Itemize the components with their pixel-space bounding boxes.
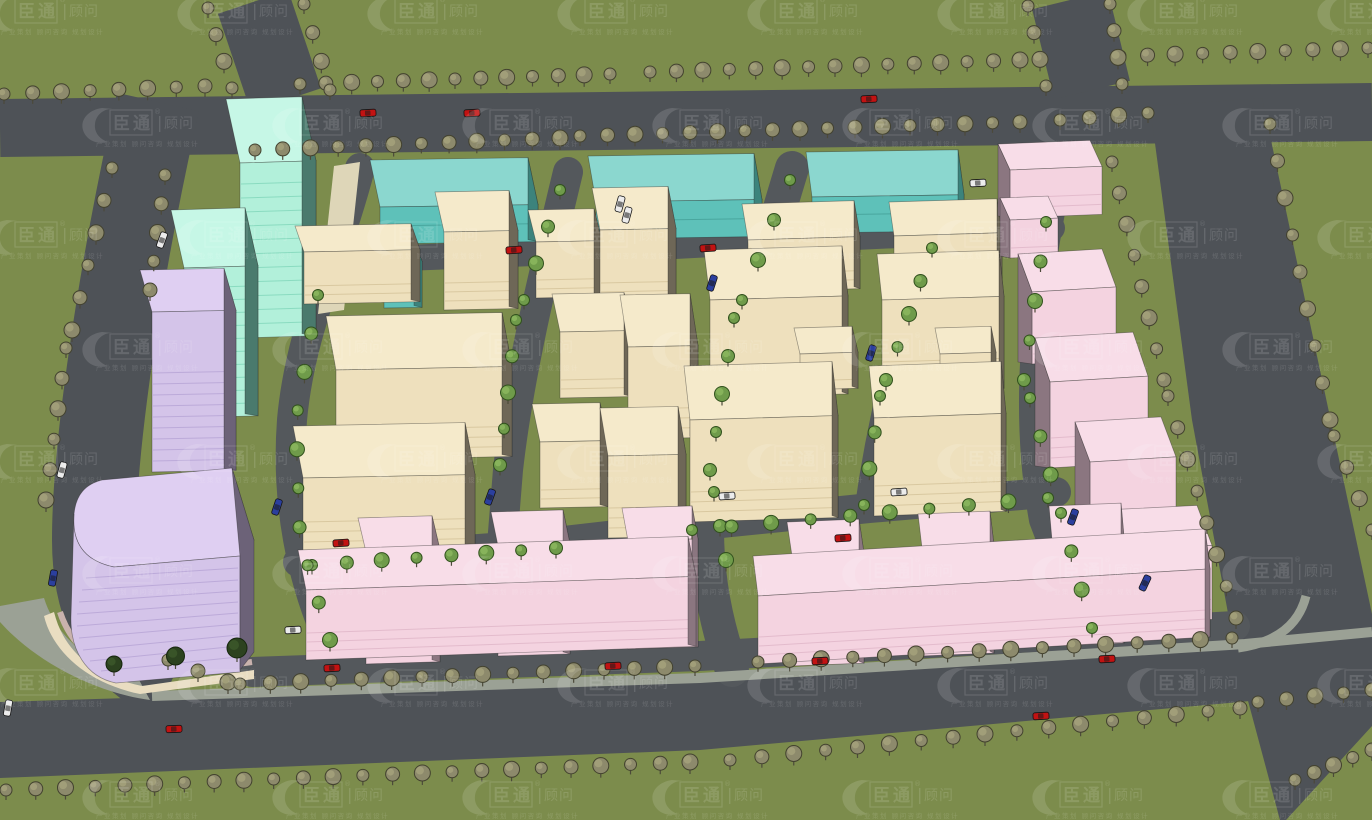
- tree-highlight: [171, 82, 177, 88]
- tree-highlight: [1172, 422, 1179, 429]
- watermark-brand-text: 臣通: [398, 450, 438, 470]
- watermark-brand-text: 臣通: [1063, 114, 1103, 134]
- tree-highlight: [752, 254, 760, 262]
- building-pink-row-west-base: [298, 536, 696, 660]
- tree-highlight: [74, 292, 81, 299]
- tree-highlight: [716, 388, 724, 396]
- tree-highlight: [909, 58, 916, 65]
- tree-highlight: [1142, 50, 1149, 57]
- tree-highlight: [293, 406, 299, 412]
- tree-highlight: [538, 666, 545, 673]
- watermark-brand-text: 臣通: [873, 786, 913, 806]
- tree-highlight: [475, 73, 482, 80]
- tree-highlight: [144, 284, 151, 291]
- watermark-suffix-text: 顾问: [1304, 788, 1334, 804]
- tree-highlight: [141, 82, 149, 90]
- watermark-divider: |: [1297, 785, 1302, 804]
- tree-highlight: [786, 176, 792, 182]
- watermark-tagline: 产业策划 顾问咨询 规划设计: [96, 139, 199, 148]
- tree-highlight: [505, 763, 513, 771]
- tree-highlight: [794, 123, 802, 131]
- watermark-divider: |: [632, 1, 637, 20]
- tree-highlight: [49, 434, 55, 440]
- roof-face: [600, 406, 686, 456]
- tree-highlight: [671, 66, 678, 73]
- tree-highlight: [804, 62, 810, 68]
- watermark-brand-text: 臣通: [778, 2, 818, 22]
- tree-highlight: [250, 145, 256, 151]
- watermark-divider: |: [822, 449, 827, 468]
- tree-highlight: [750, 63, 757, 70]
- watermark-brand-text: 臣通: [683, 786, 723, 806]
- watermark-brand-text: 臣通: [683, 338, 723, 358]
- watermark-tagline: 产业策划 顾问咨询 规划设计: [1141, 475, 1244, 484]
- tree-highlight: [556, 186, 562, 192]
- tree-highlight: [298, 772, 305, 779]
- watermark-divider: |: [1012, 673, 1017, 692]
- tree-highlight: [869, 427, 876, 434]
- tree-highlight: [1004, 643, 1012, 651]
- tree-highlight: [705, 465, 712, 472]
- north-branch-east: [1070, 0, 1092, 90]
- tree-highlight: [1230, 612, 1237, 619]
- watermark-divider: |: [1297, 337, 1302, 356]
- watermark-divider: |: [1012, 449, 1017, 468]
- watermark-tagline: 产业策划 顾问咨询 规划设计: [96, 587, 199, 596]
- watermark-divider: |: [252, 673, 257, 692]
- watermark-divider: |: [442, 449, 447, 468]
- watermark-divider: |: [62, 449, 67, 468]
- tree-highlight: [710, 488, 716, 494]
- tree-highlight: [863, 463, 871, 471]
- car-red: [1033, 712, 1049, 720]
- tree-highlight: [1307, 44, 1314, 51]
- car-white: [719, 492, 735, 500]
- watermark-divider: |: [632, 673, 637, 692]
- tree-highlight: [629, 128, 637, 136]
- tree-highlight: [326, 676, 332, 682]
- watermark-brand-text: 臣通: [18, 674, 58, 694]
- tree-highlight: [1044, 494, 1050, 500]
- watermark-divider: |: [252, 225, 257, 244]
- tree-highlight: [988, 118, 994, 124]
- tree-highlight: [327, 770, 335, 778]
- watermark-suffix-text: 顾问: [1114, 340, 1144, 356]
- tree-highlight: [446, 550, 453, 557]
- watermark-suffix-text: 顾问: [639, 452, 669, 468]
- tree-highlight: [1327, 759, 1335, 767]
- watermark-brand-text: 臣通: [588, 226, 628, 246]
- watermark-brand-text: 臣通: [873, 562, 913, 582]
- watermark-divider: |: [157, 337, 162, 356]
- tree-highlight: [928, 244, 934, 250]
- tree-highlight: [554, 132, 562, 140]
- watermark-suffix-text: 顾问: [1114, 564, 1144, 580]
- watermark-brand-text: 臣通: [1063, 786, 1103, 806]
- watermark-suffix-text: 顾问: [164, 116, 194, 132]
- watermark-brand-text: 臣通: [1063, 562, 1103, 582]
- tree-highlight: [98, 195, 105, 202]
- watermark-tagline: 产业策划 顾问咨询 规划设计: [761, 251, 864, 260]
- tree-highlight: [688, 526, 694, 532]
- watermark-tagline: 产业策划 顾问咨询 规划设计: [476, 363, 579, 372]
- tree-highlight: [108, 658, 116, 666]
- tree-highlight: [845, 511, 852, 518]
- watermark-tagline: 产业策划 顾问咨询 规划设计: [1, 699, 104, 708]
- watermark-tagline: 产业策划 顾问咨询 规划设计: [286, 363, 389, 372]
- tree-highlight: [113, 84, 120, 91]
- watermark-tagline: 产业策划 顾问咨询 规划设计: [191, 27, 294, 36]
- tree-highlight: [1348, 753, 1354, 759]
- watermark-suffix-text: 顾问: [1304, 340, 1334, 356]
- watermark-tagline: 产业策划 顾问咨询 规划设计: [191, 251, 294, 260]
- tree-highlight: [1114, 188, 1121, 195]
- tree-highlight: [1194, 633, 1202, 641]
- watermark-brand-text: 臣通: [113, 114, 153, 134]
- tree-highlight: [416, 767, 424, 775]
- tree-highlight: [528, 72, 534, 78]
- tree-highlight: [1143, 311, 1151, 319]
- watermark-suffix-text: 顾问: [259, 228, 289, 244]
- watermark-suffix-text: 顾问: [354, 116, 384, 132]
- tree-highlight: [959, 117, 967, 125]
- tree-highlight: [787, 747, 795, 755]
- watermark-brand-text: 臣通: [493, 338, 533, 358]
- watermark-tagline: 产业策划 顾问咨询 规划设计: [96, 811, 199, 820]
- tree-highlight: [1012, 726, 1018, 732]
- watermark-divider: |: [917, 113, 922, 132]
- tree-highlight: [1309, 767, 1316, 774]
- tree-highlight: [1035, 431, 1042, 438]
- tree-highlight: [767, 124, 774, 131]
- tree-highlight: [314, 597, 321, 604]
- tree-highlight: [1363, 43, 1369, 49]
- watermark-suffix-text: 顾问: [924, 788, 954, 804]
- tree-highlight: [1088, 624, 1094, 630]
- tree-highlight: [1117, 79, 1123, 85]
- watermark-suffix-text: 顾问: [924, 116, 954, 132]
- tree-highlight: [450, 74, 456, 80]
- master-plan-rendering: 臣通®|顾问产业策划 顾问咨询 规划设计臣通®|顾问产业策划 顾问咨询 规划设计…: [0, 0, 1372, 820]
- watermark-divider: |: [1107, 785, 1112, 804]
- tree-highlight: [295, 79, 301, 85]
- watermark-brand-text: 臣通: [493, 114, 533, 134]
- watermark-divider: |: [157, 561, 162, 580]
- watermark-suffix-text: 顾问: [1114, 788, 1144, 804]
- watermark-brand-text: 臣通: [778, 450, 818, 470]
- watermark-tagline: 产业策划 顾问咨询 规划设计: [761, 475, 864, 484]
- watermark-suffix-text: 顾问: [449, 4, 479, 20]
- watermark-tagline: 产业策划 顾问咨询 规划设计: [761, 27, 864, 36]
- watermark-suffix-text: 顾问: [1114, 116, 1144, 132]
- tree-highlight: [160, 170, 166, 176]
- watermark-divider: |: [442, 673, 447, 692]
- watermark-tagline: 产业策划 顾问咨询 规划设计: [951, 699, 1054, 708]
- tree-highlight: [1, 785, 7, 791]
- watermark-tagline: 产业策划 顾问咨询 规划设计: [381, 251, 484, 260]
- watermark-suffix-text: 顾问: [829, 452, 859, 468]
- tree-highlight: [855, 59, 863, 67]
- tree-highlight: [1309, 690, 1317, 698]
- watermark-brand-text: 臣通: [208, 226, 248, 246]
- watermark-tagline: 产业策划 顾问咨询 规划设计: [571, 251, 674, 260]
- car-red: [861, 95, 877, 103]
- tree-highlight: [1108, 716, 1114, 722]
- watermark-tagline: 产业策划 顾问咨询 规划设计: [1, 475, 104, 484]
- watermark-tagline: 产业策划 顾问咨询 规划设计: [476, 811, 579, 820]
- watermark-suffix-text: 顾问: [734, 116, 764, 132]
- tree-highlight: [1019, 375, 1026, 382]
- tree-highlight: [1163, 391, 1169, 397]
- tree-highlight: [385, 672, 393, 680]
- watermark-divider: |: [1107, 561, 1112, 580]
- car-red: [835, 534, 851, 542]
- tree-highlight: [1034, 53, 1042, 61]
- watermark-divider: |: [822, 673, 827, 692]
- tree-highlight: [500, 71, 508, 79]
- scene-svg: 臣通®|顾问产业策划 顾问咨询 规划设计臣通®|顾问产业策划 顾问咨询 规划设计…: [0, 0, 1372, 820]
- tree-highlight: [345, 76, 353, 84]
- car-red: [605, 662, 621, 670]
- tree-highlight: [209, 776, 216, 783]
- tree-highlight: [1108, 25, 1115, 32]
- watermark-suffix-text: 顾问: [924, 564, 954, 580]
- tree-highlight: [962, 57, 968, 63]
- tree-highlight: [1288, 230, 1294, 236]
- tree-highlight: [398, 75, 405, 82]
- watermark-tagline: 产业策划 顾问咨询 规划设计: [1141, 699, 1244, 708]
- watermark-divider: |: [632, 449, 637, 468]
- watermark-suffix-text: 顾问: [544, 340, 574, 356]
- watermark-suffix-text: 顾问: [449, 452, 479, 468]
- watermark-divider: |: [442, 1, 447, 20]
- tree-highlight: [294, 522, 301, 529]
- watermark-tagline: 产业策划 顾问咨询 规划设计: [1236, 139, 1339, 148]
- tree-highlight: [314, 291, 320, 297]
- tree-highlight: [903, 308, 911, 316]
- watermark-tagline: 产业策划 顾问咨询 规划设计: [856, 363, 959, 372]
- watermark-brand-text: 臣通: [683, 562, 723, 582]
- car-red: [324, 664, 340, 672]
- watermark-tagline: 产业策划 顾问咨询 规划设计: [1236, 363, 1339, 372]
- watermark-tagline: 产业策划 顾问咨询 规划设计: [191, 699, 294, 708]
- watermark-brand-text: 臣通: [493, 786, 533, 806]
- tree-highlight: [1279, 192, 1287, 200]
- tree-highlight: [387, 769, 394, 776]
- tree-highlight: [315, 55, 323, 63]
- tree-highlight: [852, 741, 859, 748]
- watermark-tagline: 产业策划 顾问咨询 规划设计: [191, 475, 294, 484]
- tree-highlight: [1253, 697, 1259, 703]
- tree-highlight: [307, 27, 314, 34]
- tree-highlight: [495, 460, 502, 467]
- tree-highlight: [1272, 155, 1279, 162]
- watermark-tagline: 产业策划 顾问咨询 规划设计: [1141, 251, 1244, 260]
- watermark-divider: |: [62, 1, 67, 20]
- watermark-tagline: 产业策划 顾问咨询 规划设计: [1236, 811, 1339, 820]
- tree-highlight: [1057, 509, 1063, 514]
- tree-highlight: [988, 55, 995, 62]
- tree-highlight: [578, 68, 586, 76]
- watermark-brand-text: 臣通: [113, 338, 153, 358]
- tree-highlight: [61, 343, 67, 349]
- roof-face: [622, 506, 698, 541]
- tree-highlight: [1158, 374, 1165, 381]
- tree-highlight: [1210, 548, 1218, 556]
- watermark-brand-text: 臣通: [398, 2, 438, 22]
- tree-highlight: [517, 546, 523, 552]
- watermark-suffix-text: 顾问: [734, 564, 764, 580]
- watermark-divider: |: [537, 113, 542, 132]
- watermark-divider: |: [157, 785, 162, 804]
- tree-highlight: [1163, 636, 1170, 643]
- tree-highlight: [910, 648, 918, 656]
- watermark-divider: |: [157, 113, 162, 132]
- watermark-divider: |: [727, 113, 732, 132]
- car-red: [700, 244, 716, 252]
- car-red: [166, 725, 182, 733]
- watermark-suffix-text: 顾问: [1209, 676, 1239, 692]
- watermark-suffix-text: 顾问: [354, 340, 384, 356]
- tree-highlight: [291, 443, 299, 451]
- watermark-suffix-text: 顾问: [1209, 228, 1239, 244]
- watermark-divider: |: [62, 673, 67, 692]
- tree-highlight: [199, 80, 206, 87]
- car-white: [970, 179, 986, 187]
- watermark-tagline: 产业策划 顾问咨询 规划设计: [856, 811, 959, 820]
- watermark-brand-text: 臣通: [1253, 786, 1293, 806]
- watermark-divider: |: [537, 337, 542, 356]
- tree-highlight: [537, 763, 543, 769]
- tree-highlight: [480, 547, 488, 555]
- tree-highlight: [168, 649, 177, 658]
- watermark-divider: |: [727, 337, 732, 356]
- watermark-suffix-text: 顾问: [639, 228, 669, 244]
- tree-highlight: [1041, 81, 1047, 87]
- tree-highlight: [512, 316, 518, 322]
- tree-highlight: [1132, 638, 1138, 644]
- roof-face: [532, 403, 608, 442]
- tree-highlight: [373, 77, 379, 83]
- tree-highlight: [417, 139, 423, 145]
- tree-highlight: [443, 137, 450, 144]
- tree-highlight: [1043, 722, 1050, 729]
- tree-highlight: [765, 517, 773, 525]
- tree-highlight: [730, 314, 736, 320]
- watermark-divider: |: [1202, 1, 1207, 20]
- tree-highlight: [66, 324, 74, 332]
- watermark-suffix-text: 顾问: [354, 788, 384, 804]
- tree-highlight: [1227, 633, 1233, 639]
- tree-highlight: [860, 501, 866, 507]
- watermark-brand-text: 臣通: [303, 338, 343, 358]
- tree-highlight: [1066, 546, 1073, 553]
- watermark-tagline: 产业策划 顾问咨询 规划设计: [1046, 811, 1149, 820]
- watermark-tagline: 产业策划 顾问咨询 规划设计: [1331, 251, 1372, 260]
- tree-highlight: [626, 760, 632, 766]
- watermark-suffix-text: 顾问: [259, 452, 289, 468]
- watermark-suffix-text: 顾问: [354, 564, 384, 580]
- watermark-suffix-text: 顾问: [259, 4, 289, 20]
- tree-highlight: [848, 652, 854, 658]
- tree-highlight: [1014, 116, 1021, 123]
- watermark-suffix-text: 顾问: [829, 4, 859, 20]
- watermark-brand-text: 臣通: [303, 562, 343, 582]
- tree-highlight: [1192, 486, 1198, 492]
- tree-highlight: [107, 163, 113, 169]
- watermark-tagline: 产业策划 顾问咨询 规划设计: [666, 139, 769, 148]
- tree-highlight: [1068, 640, 1075, 647]
- watermark-brand-text: 臣通: [588, 450, 628, 470]
- tree-highlight: [1029, 295, 1037, 303]
- watermark-brand-text: 臣通: [1158, 674, 1198, 694]
- tree-highlight: [724, 65, 730, 71]
- watermark-suffix-text: 顾问: [1209, 4, 1239, 20]
- tree-highlight: [1324, 414, 1332, 422]
- tree-highlight: [974, 645, 981, 652]
- watermark-suffix-text: 顾问: [164, 340, 194, 356]
- tree-highlight: [1281, 46, 1287, 52]
- tree-highlight: [943, 648, 949, 654]
- tree-highlight: [605, 69, 611, 75]
- tree-highlight: [881, 375, 888, 382]
- tree-highlight: [884, 506, 892, 514]
- tree-highlight: [320, 78, 327, 85]
- watermark-suffix-text: 顾问: [69, 676, 99, 692]
- watermark-brand-text: 臣通: [1348, 2, 1372, 22]
- tree-highlight: [756, 751, 763, 758]
- watermark-tagline: 产业策划 顾问咨询 规划设计: [1046, 363, 1149, 372]
- car-red: [1099, 655, 1115, 663]
- watermark-suffix-text: 顾问: [1019, 452, 1049, 468]
- tree-highlight: [508, 668, 514, 674]
- watermark-tagline: 产业策划 顾问咨询 规划设计: [951, 251, 1054, 260]
- watermark-tagline: 产业策划 顾问咨询 规划设计: [381, 27, 484, 36]
- buildings: [71, 97, 1212, 683]
- watermark-suffix-text: 顾问: [449, 676, 479, 692]
- watermark-suffix-text: 顾问: [1019, 228, 1049, 244]
- tree-highlight: [1329, 431, 1335, 437]
- tree-highlight: [915, 276, 922, 283]
- watermark-divider: |: [1107, 337, 1112, 356]
- tree-highlight: [520, 296, 526, 302]
- watermark-suffix-text: 顾问: [734, 340, 764, 356]
- tree-highlight: [1002, 496, 1010, 504]
- watermark-brand-text: 臣通: [1158, 226, 1198, 246]
- tree-highlight: [358, 771, 364, 777]
- watermark-divider: |: [252, 1, 257, 20]
- watermark-suffix-text: 顾问: [1019, 676, 1049, 692]
- watermark-divider: |: [537, 785, 542, 804]
- tree-highlight: [725, 755, 731, 761]
- tree-highlight: [925, 504, 931, 510]
- watermark-brand-text: 臣通: [398, 226, 438, 246]
- tree-highlight: [294, 484, 300, 490]
- tree-highlight: [1198, 49, 1204, 55]
- watermark-divider: |: [62, 225, 67, 244]
- watermark-brand-text: 臣通: [398, 674, 438, 694]
- watermark-tagline: 产业策划 顾问咨询 规划设计: [1046, 587, 1149, 596]
- watermark-brand-text: 臣通: [1348, 450, 1372, 470]
- watermark-brand-text: 臣通: [1253, 114, 1293, 134]
- tree-highlight: [712, 428, 718, 434]
- watermark-tagline: 产业策划 顾问咨询 规划设计: [666, 811, 769, 820]
- tree-highlight: [1334, 42, 1342, 50]
- watermark-divider: |: [822, 225, 827, 244]
- building-purple-block-2-curved: [71, 468, 254, 683]
- watermark-tagline: 产业策划 顾问咨询 规划设计: [286, 587, 389, 596]
- watermark-divider: |: [347, 785, 352, 804]
